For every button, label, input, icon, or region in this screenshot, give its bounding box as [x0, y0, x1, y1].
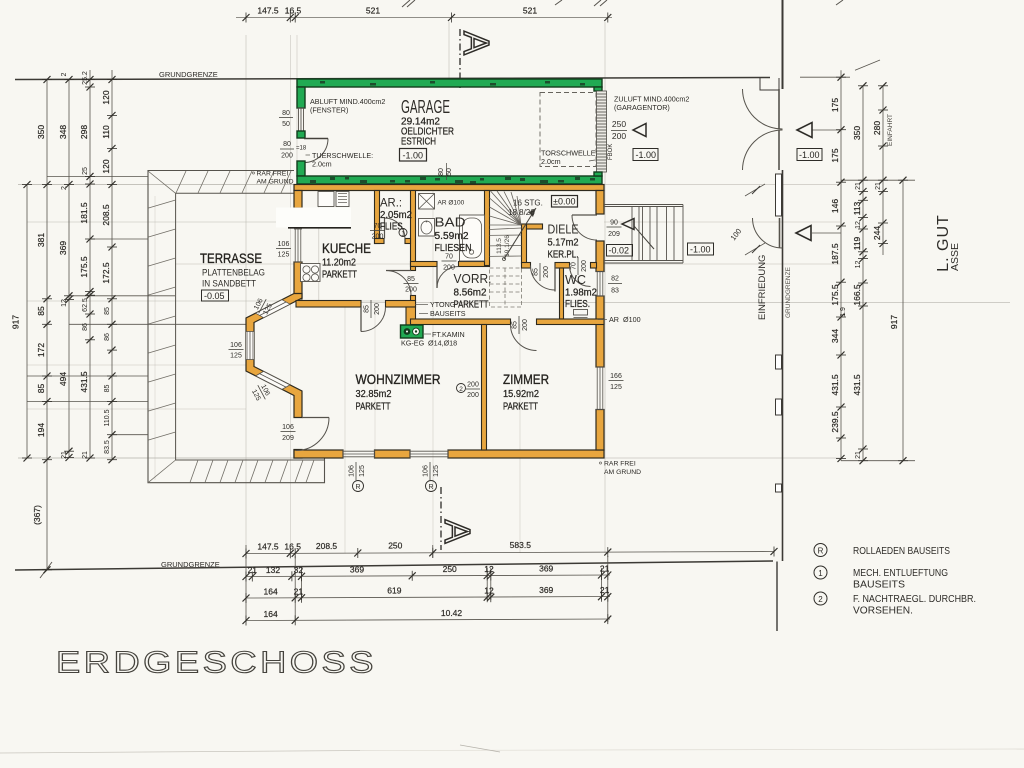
svg-text:2: 2	[818, 595, 823, 604]
svg-text:350: 350	[852, 126, 862, 140]
svg-text:120: 120	[101, 159, 111, 173]
svg-text:16 STG.: 16 STG.	[513, 199, 543, 208]
svg-text:113.5: 113.5	[496, 238, 503, 254]
svg-text:106: 106	[230, 342, 242, 349]
svg-text:80: 80	[283, 141, 291, 148]
svg-text:86: 86	[82, 323, 89, 331]
svg-text:85: 85	[104, 307, 111, 315]
svg-text:369: 369	[539, 564, 553, 574]
svg-text:10.42: 10.42	[441, 608, 463, 618]
svg-text:Ø14,Ø18: Ø14,Ø18	[428, 339, 457, 348]
svg-text:250: 250	[388, 541, 402, 551]
svg-text:EINFRIEDUNG: EINFRIEDUNG	[757, 255, 768, 320]
svg-text:583.5: 583.5	[510, 540, 532, 550]
svg-text:RAR FREI: RAR FREI	[604, 461, 636, 468]
svg-text:125: 125	[278, 252, 290, 259]
svg-text:110.5: 110.5	[104, 409, 111, 426]
svg-text:ESTRICH: ESTRICH	[401, 137, 436, 148]
svg-text:-1.00: -1.00	[403, 151, 424, 161]
svg-text:EINFAHRT: EINFAHRT	[887, 114, 894, 146]
svg-text:VORR.: VORR.	[454, 271, 492, 286]
svg-text:IN SANDBETT: IN SANDBETT	[202, 279, 256, 290]
svg-text:25.2: 25.2	[82, 71, 89, 85]
svg-text:187.5: 187.5	[830, 243, 840, 265]
svg-text:R: R	[355, 484, 360, 491]
svg-text:32.85m2: 32.85m2	[356, 389, 392, 400]
svg-text:2: 2	[61, 186, 68, 190]
svg-text:21: 21	[600, 564, 610, 574]
svg-text:-1.00: -1.00	[690, 245, 711, 255]
svg-text:250: 250	[612, 119, 626, 129]
svg-text:200: 200	[612, 131, 626, 141]
svg-text:12: 12	[484, 564, 494, 574]
svg-text:200: 200	[581, 260, 588, 272]
svg-text:85: 85	[512, 321, 519, 329]
svg-text:106: 106	[282, 424, 294, 431]
svg-text:82: 82	[611, 276, 619, 283]
svg-text:AM GRUND: AM GRUND	[604, 469, 641, 476]
svg-text:80: 80	[438, 168, 445, 176]
svg-text:25: 25	[82, 167, 89, 175]
svg-text:WOHNZIMMER: WOHNZIMMER	[356, 371, 441, 387]
svg-text:344: 344	[830, 329, 840, 343]
svg-text:(GARAGENTOR): (GARAGENTOR)	[614, 103, 670, 112]
svg-text:125: 125	[230, 353, 242, 360]
svg-text:172: 172	[36, 343, 46, 357]
svg-text:200: 200	[467, 382, 479, 389]
svg-text:175: 175	[830, 148, 840, 162]
svg-text:85: 85	[36, 306, 46, 316]
svg-text:12: 12	[61, 299, 68, 307]
svg-text:A: A	[456, 31, 497, 55]
svg-text:208.5: 208.5	[316, 541, 338, 551]
svg-text:106: 106	[278, 241, 290, 248]
svg-text:KUECHE: KUECHE	[322, 240, 371, 256]
svg-text:DIELE: DIELE	[548, 223, 579, 237]
svg-text:494: 494	[58, 372, 68, 386]
svg-text:194: 194	[36, 423, 46, 437]
svg-text:85: 85	[104, 385, 111, 393]
svg-text:348: 348	[58, 125, 68, 139]
svg-text:2: 2	[459, 386, 463, 393]
svg-text:VORSEHEN.: VORSEHEN.	[853, 606, 913, 617]
svg-text:AR.:: AR.:	[380, 198, 402, 210]
svg-text:85: 85	[407, 276, 415, 283]
svg-text:521: 521	[366, 6, 380, 16]
svg-text:R: R	[818, 547, 824, 556]
svg-text:GARAGE: GARAGE	[401, 97, 450, 117]
svg-text:2.05m2: 2.05m2	[380, 210, 412, 221]
svg-text:11.20m2: 11.20m2	[322, 258, 356, 269]
svg-text:21: 21	[600, 585, 610, 595]
svg-text:113: 113	[852, 201, 862, 215]
svg-text:90: 90	[610, 220, 618, 227]
svg-text:83.5: 83.5	[104, 440, 111, 454]
svg-text:70: 70	[445, 254, 453, 261]
svg-text:FLIES.: FLIES.	[565, 299, 590, 310]
svg-text:250: 250	[443, 564, 457, 574]
svg-text:TERRASSE: TERRASSE	[200, 250, 262, 266]
svg-text:12: 12	[484, 586, 494, 596]
svg-text:280: 280	[872, 121, 882, 135]
svg-text:MECH. ENTLUEFTUNG: MECH. ENTLUEFTUNG	[853, 568, 948, 579]
svg-text:A: A	[437, 520, 478, 544]
svg-text:83: 83	[611, 288, 619, 295]
svg-text:175: 175	[830, 98, 840, 112]
svg-text:50: 50	[446, 168, 453, 176]
svg-text:2: 2	[61, 72, 68, 76]
svg-text:1: 1	[818, 569, 823, 578]
svg-text:85: 85	[36, 384, 46, 394]
svg-text:62.5: 62.5	[82, 298, 89, 312]
svg-text:16.5: 16.5	[285, 6, 302, 16]
svg-text:619: 619	[387, 586, 401, 596]
svg-text:200: 200	[374, 303, 381, 315]
svg-text:200: 200	[405, 287, 417, 294]
svg-text:19.1/26: 19.1/26	[504, 235, 511, 257]
svg-text:KER.PL.: KER.PL.	[548, 250, 579, 261]
svg-text:=18: =18	[296, 146, 307, 152]
svg-text:106: 106	[349, 465, 356, 477]
svg-text:431.5: 431.5	[830, 374, 840, 396]
svg-text:F. NACHTRAEGL. DURCHBR.: F. NACHTRAEGL. DURCHBR.	[853, 594, 976, 605]
svg-text:8.56m2: 8.56m2	[454, 288, 487, 299]
svg-text:70: 70	[374, 223, 382, 230]
svg-text:917: 917	[889, 315, 899, 329]
svg-text:164: 164	[264, 609, 278, 619]
svg-text:106: 106	[423, 465, 430, 477]
svg-text:166.5: 166.5	[852, 284, 862, 306]
svg-text:208.5: 208.5	[101, 204, 111, 226]
svg-text:ASSE: ASSE	[949, 243, 961, 271]
svg-text:21: 21	[82, 451, 89, 459]
svg-text:431.5: 431.5	[852, 374, 862, 396]
svg-text:-0.02: -0.02	[609, 246, 630, 256]
svg-text:1.98m2: 1.98m2	[565, 288, 597, 299]
svg-text:1.9: 1.9	[840, 307, 847, 317]
svg-text:(FENSTER): (FENSTER)	[310, 106, 348, 115]
svg-text:15.92m2: 15.92m2	[503, 389, 539, 400]
svg-text:PARKETT: PARKETT	[356, 402, 391, 413]
svg-text:FLIESEN: FLIESEN	[435, 243, 472, 254]
svg-text:917: 917	[11, 315, 21, 329]
svg-text:298: 298	[79, 125, 89, 139]
svg-text:200: 200	[372, 234, 384, 241]
svg-text:AR Ø100: AR Ø100	[609, 315, 641, 324]
svg-text:RAR FREI: RAR FREI	[257, 171, 289, 178]
svg-text:200: 200	[522, 319, 529, 331]
svg-text:146: 146	[830, 199, 840, 213]
svg-text:(367): (367)	[32, 505, 42, 525]
svg-text:200: 200	[443, 265, 455, 272]
svg-text:5.17m2: 5.17m2	[548, 238, 579, 249]
svg-text:147.5: 147.5	[257, 6, 279, 16]
svg-text:85: 85	[364, 305, 371, 313]
svg-text:±0.00: ±0.00	[553, 197, 575, 207]
svg-text:209: 209	[282, 435, 294, 442]
svg-text:21: 21	[855, 451, 862, 459]
svg-text:369: 369	[539, 585, 553, 595]
svg-text:70: 70	[571, 262, 578, 270]
svg-text:132: 132	[266, 565, 280, 575]
svg-text:86: 86	[104, 333, 111, 341]
svg-text:PARKETT: PARKETT	[322, 270, 357, 281]
svg-text:5.59m2: 5.59m2	[435, 231, 469, 242]
svg-text:125: 125	[359, 465, 366, 477]
svg-text:KG-EG: KG-EG	[401, 339, 425, 348]
svg-text:350: 350	[36, 125, 46, 139]
svg-text:YTONG: YTONG	[430, 300, 456, 309]
svg-text:12: 12	[855, 221, 862, 229]
svg-text:175.5: 175.5	[830, 284, 840, 306]
svg-text:AM GRUND: AM GRUND	[257, 179, 294, 186]
svg-text:32: 32	[294, 565, 304, 575]
svg-text:431.5: 431.5	[79, 371, 89, 393]
svg-text:175.5: 175.5	[79, 256, 89, 278]
svg-text:-1.00: -1.00	[799, 150, 820, 160]
svg-text:164: 164	[264, 587, 278, 597]
svg-text:244: 244	[872, 226, 882, 240]
svg-text:120: 120	[101, 90, 111, 104]
svg-text:21: 21	[875, 182, 882, 190]
svg-text:239.5: 239.5	[830, 411, 840, 433]
svg-text:AR Ø100: AR Ø100	[438, 200, 465, 207]
svg-text:12: 12	[855, 261, 862, 269]
svg-text:ROLLAEDEN BAUSEITS: ROLLAEDEN BAUSEITS	[853, 546, 950, 557]
svg-text:200: 200	[281, 153, 293, 160]
svg-text:R: R	[428, 484, 433, 491]
svg-text:110: 110	[101, 125, 111, 139]
svg-text:PLATTENBELAG: PLATTENBELAG	[202, 268, 265, 279]
svg-text:2.0cm: 2.0cm	[312, 160, 332, 169]
svg-text:200: 200	[543, 266, 550, 278]
svg-text:200: 200	[467, 392, 479, 399]
svg-text:18.8/26: 18.8/26	[508, 208, 535, 217]
svg-text:172.5: 172.5	[101, 262, 111, 284]
svg-text:369: 369	[350, 565, 364, 575]
svg-text:181.5: 181.5	[79, 202, 89, 224]
svg-text:BAUSEITS: BAUSEITS	[430, 309, 466, 318]
svg-text:21: 21	[248, 565, 258, 575]
svg-text:ERDGESCHOSS: ERDGESCHOSS	[56, 645, 377, 680]
svg-text:21: 21	[855, 182, 862, 190]
svg-text:119: 119	[852, 236, 862, 250]
svg-text:WC: WC	[565, 272, 586, 287]
svg-text:21: 21	[61, 451, 68, 459]
svg-text:16.5: 16.5	[284, 542, 301, 552]
svg-text:GRUNDGRENZE: GRUNDGRENZE	[785, 266, 792, 318]
svg-text:BAD: BAD	[435, 215, 466, 230]
svg-text:521: 521	[523, 6, 537, 16]
svg-text:1: 1	[401, 231, 405, 238]
svg-text:-1.00: -1.00	[636, 150, 657, 160]
svg-text:166: 166	[610, 373, 622, 380]
svg-text:-0.05: -0.05	[204, 291, 225, 301]
svg-text:ZIMMER: ZIMMER	[503, 371, 549, 387]
svg-text:147.5: 147.5	[257, 542, 279, 552]
svg-text:85: 85	[533, 268, 540, 276]
svg-text:GRUNDGRENZE: GRUNDGRENZE	[159, 70, 218, 79]
svg-text:80: 80	[282, 110, 290, 117]
svg-text:FBOK: FBOK	[608, 144, 614, 160]
svg-text:50: 50	[282, 121, 290, 128]
svg-text:21: 21	[294, 587, 304, 597]
svg-text:125: 125	[610, 384, 622, 391]
svg-text:369: 369	[58, 241, 68, 255]
svg-text:BAUSEITS: BAUSEITS	[853, 580, 905, 591]
svg-text:209: 209	[608, 231, 620, 238]
svg-text:2.0cm: 2.0cm	[541, 157, 561, 166]
svg-text:125: 125	[433, 465, 440, 477]
svg-text:GRUNDGRENZE: GRUNDGRENZE	[161, 560, 220, 569]
svg-text:381: 381	[36, 233, 46, 247]
svg-text:PARKETT: PARKETT	[503, 402, 538, 413]
